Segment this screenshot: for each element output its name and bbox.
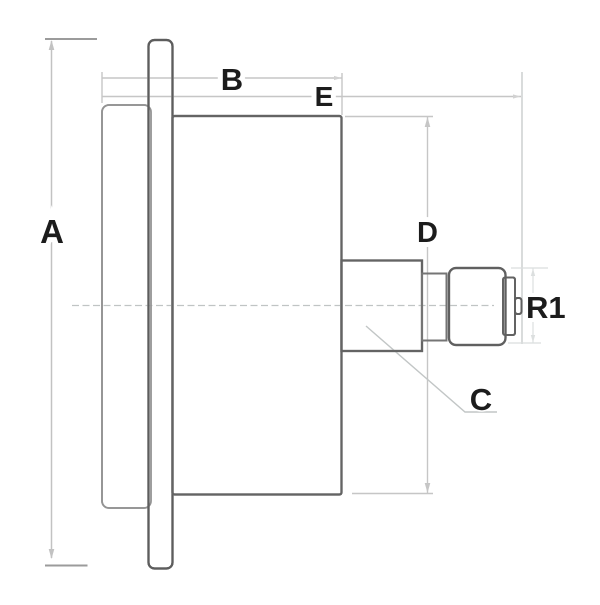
svg-text:D: D — [417, 217, 438, 249]
svg-text:C: C — [470, 382, 492, 417]
svg-text:A: A — [40, 213, 64, 250]
svg-text:E: E — [315, 81, 334, 112]
svg-text:B: B — [221, 62, 243, 97]
svg-text:R1: R1 — [526, 290, 566, 325]
